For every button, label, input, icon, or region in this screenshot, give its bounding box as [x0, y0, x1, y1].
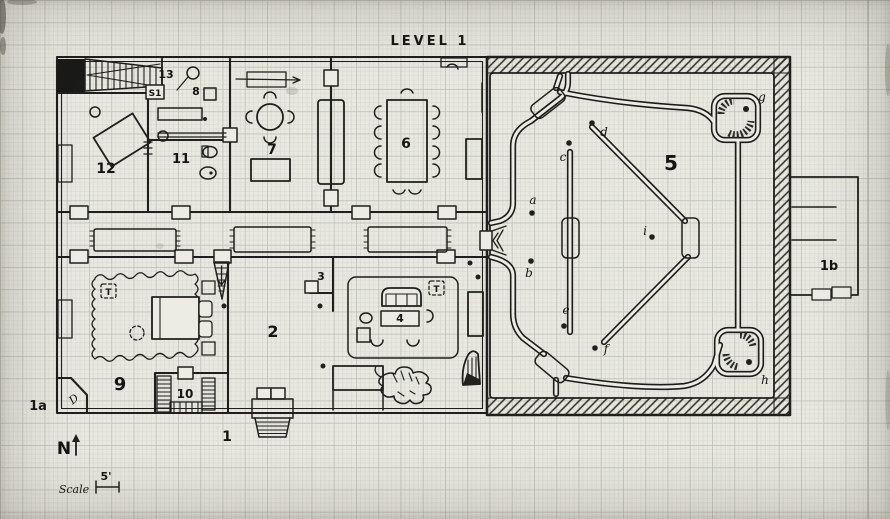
- point-label-c: c: [560, 150, 567, 164]
- room-label-7: 7: [267, 142, 277, 158]
- room-label-8: 8: [192, 85, 200, 98]
- room-label-12: 12: [96, 161, 115, 177]
- room-label-1: 1: [222, 429, 232, 445]
- point-label-g: g: [758, 90, 766, 104]
- room-label-2: 2: [267, 322, 278, 341]
- room-label-5: 5: [664, 151, 678, 175]
- point-label-h: h: [761, 373, 769, 387]
- room-label-4: 4: [396, 312, 404, 325]
- marker-t-room9: T: [105, 288, 112, 298]
- room-label-1b: 1b: [820, 259, 838, 274]
- room-label-1a: 1a: [29, 399, 47, 414]
- scale-label: Scale: [59, 483, 90, 496]
- dungeon-map-page: LEVEL 1 1 1a 1b 2 3 4 5 6 7 8 9 10 11 12…: [0, 0, 890, 519]
- marker-t-area4: T: [433, 285, 440, 295]
- room-label-10: 10: [177, 387, 194, 401]
- room-label-13: 13: [158, 68, 173, 81]
- point-label-d: d: [600, 125, 608, 139]
- compass-n-label: N: [57, 439, 71, 459]
- point-label-i: i: [643, 224, 647, 238]
- level-1-map: LEVEL 1 1 1a 1b 2 3 4 5 6 7 8 9 10 11 12…: [0, 0, 890, 519]
- room-label-s1: S1: [149, 89, 162, 99]
- point-label-a: a: [529, 193, 536, 207]
- map-title: LEVEL 1: [391, 34, 470, 49]
- point-label-e: e: [562, 303, 569, 317]
- room-label-6: 6: [401, 136, 411, 152]
- scale-value: 5': [100, 470, 111, 483]
- point-label-b: b: [525, 266, 533, 280]
- room-label-3: 3: [317, 270, 325, 283]
- room-label-11: 11: [172, 152, 190, 167]
- room-label-9: 9: [114, 374, 127, 395]
